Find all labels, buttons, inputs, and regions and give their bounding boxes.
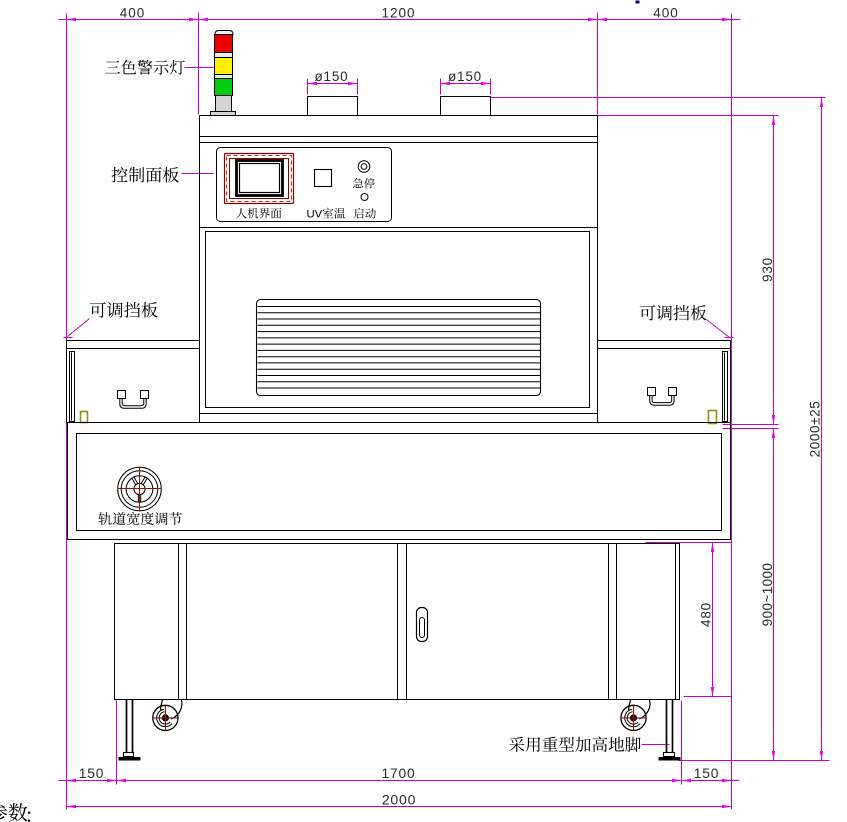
svg-text:1200: 1200 — [381, 6, 415, 21]
svg-text:900~1000: 900~1000 — [760, 563, 775, 627]
svg-text:150: 150 — [79, 766, 104, 781]
svg-text:2000±25: 2000±25 — [808, 401, 823, 458]
svg-text:930: 930 — [760, 257, 775, 282]
svg-text:ø150: ø150 — [448, 69, 482, 84]
svg-text:UV: UV — [307, 209, 323, 221]
svg-text:1700: 1700 — [382, 766, 416, 781]
svg-text:2000: 2000 — [382, 792, 416, 808]
svg-text:480: 480 — [699, 602, 714, 627]
svg-text:400: 400 — [120, 6, 146, 21]
svg-text:ø150: ø150 — [315, 69, 349, 84]
svg-text:400: 400 — [653, 6, 679, 21]
svg-text:150: 150 — [694, 766, 719, 781]
